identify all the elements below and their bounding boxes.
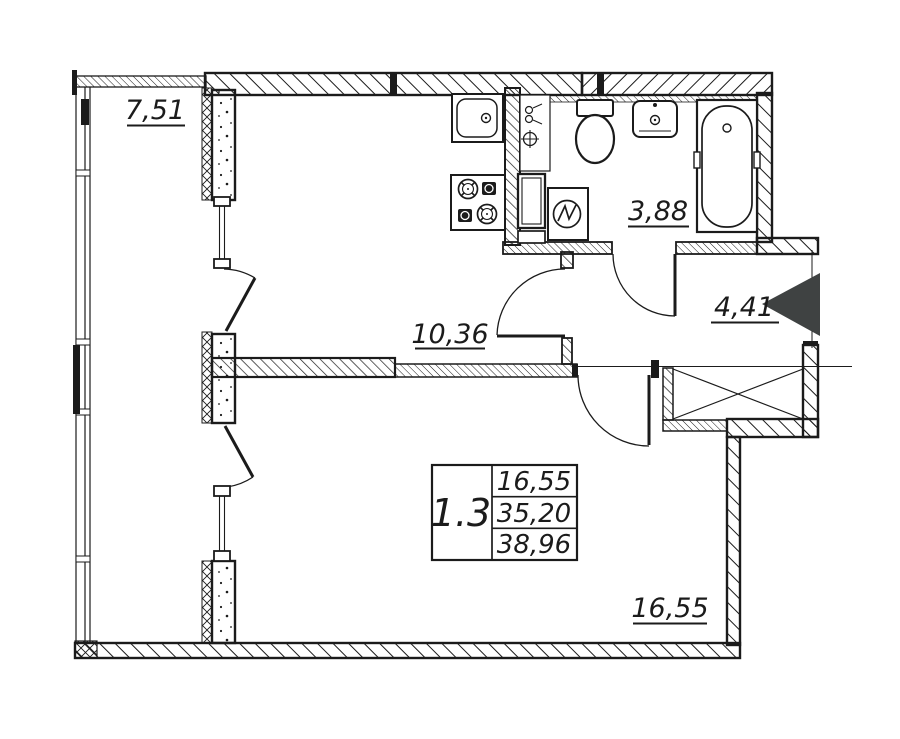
facade-pier — [72, 70, 77, 95]
balcony-window-icon — [214, 197, 230, 268]
bathroom-area-label: 3,88 — [628, 196, 689, 227]
svg-text:4,41: 4,41 — [714, 292, 774, 323]
toilet-icon — [576, 100, 614, 163]
apartment-stamp-table: 1.3 16,55 35,20 38,96 — [431, 465, 577, 560]
stamp-unit-number: 1.3 — [431, 491, 491, 535]
balcony — [72, 70, 90, 643]
stamp-apartment-area: 35,20 — [497, 499, 571, 529]
floor-plan-canvas: 7,51 10,36 3,88 4,41 16,55 1.3 16,55 35,… — [0, 0, 900, 739]
plumbing-riser-icon — [520, 95, 550, 171]
svg-text:3,88: 3,88 — [628, 196, 688, 227]
svg-text:16,55: 16,55 — [631, 593, 708, 624]
svg-text:10,36: 10,36 — [411, 319, 488, 350]
washing-machine-icon — [548, 188, 588, 240]
balcony-door-lower — [225, 426, 253, 487]
bathtub-icon — [694, 100, 760, 232]
vent-duct-icon — [518, 174, 545, 243]
floor-plan-svg: 7,51 10,36 3,88 4,41 16,55 1.3 16,55 35,… — [0, 0, 900, 739]
svg-text:7,51: 7,51 — [125, 95, 185, 126]
bathroom-door — [613, 254, 675, 316]
facade-pier — [73, 345, 80, 414]
hallway-area-label: 4,41 — [711, 292, 779, 323]
balcony-area-label: 7,51 — [125, 95, 185, 126]
living-room-door — [578, 375, 649, 446]
balcony-window-icon — [214, 486, 230, 561]
stamp-living-area: 16,55 — [497, 467, 571, 497]
kitchen-sink-icon — [452, 94, 503, 142]
kitchen-door — [497, 269, 565, 336]
kitchen-area-label: 10,36 — [411, 319, 488, 350]
wash-basin-icon — [633, 101, 677, 137]
living-room-area-label: 16,55 — [631, 593, 708, 624]
balcony-door-upper — [224, 269, 255, 331]
gas-stove-icon — [451, 175, 505, 230]
stamp-total-area: 38,96 — [497, 530, 571, 560]
facade-pier — [81, 99, 89, 125]
